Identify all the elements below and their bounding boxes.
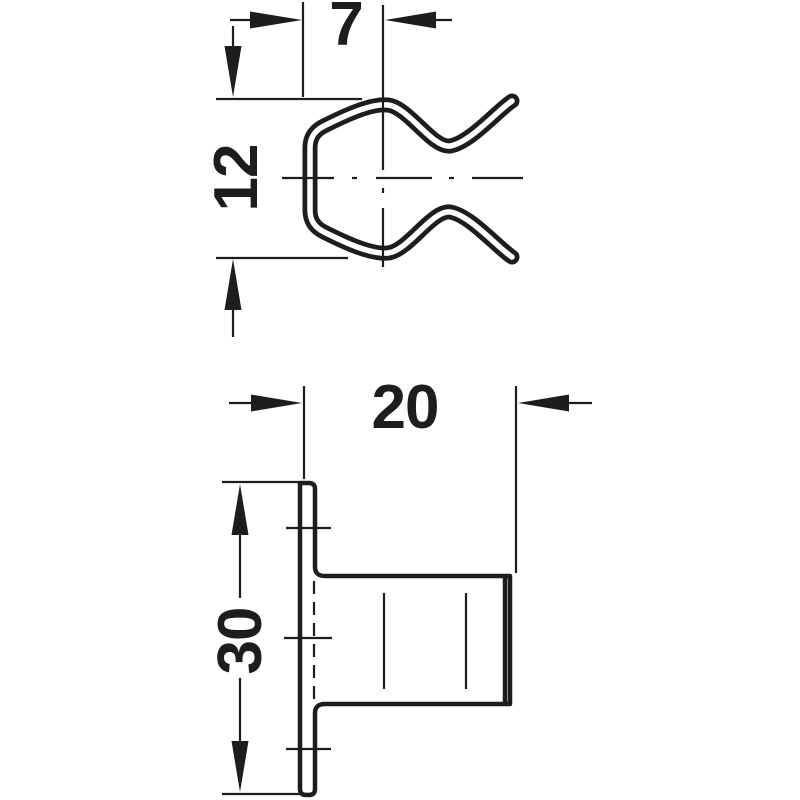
dim30-arrowhead-bottom (232, 741, 249, 792)
dim-7: 7 (230, 0, 452, 97)
dim30-arrowhead-top (232, 484, 249, 535)
dim7-arrowhead-left (250, 12, 302, 29)
technical-drawing: 7 12 (0, 0, 800, 800)
dim12-arrowhead-bottom (225, 259, 242, 310)
dim7-label: 7 (329, 0, 362, 59)
dim20-label: 20 (372, 373, 439, 442)
dim7-arrowhead-right (385, 12, 436, 29)
clip-view: 7 12 (202, 0, 523, 337)
dim12-label: 12 (202, 145, 271, 212)
dim-12: 12 (202, 26, 362, 337)
dim20-arrowhead-right (518, 395, 569, 412)
dim-20: 20 (229, 373, 592, 573)
socket-view: 20 30 (206, 373, 592, 795)
dim12-arrowhead-top (225, 46, 242, 97)
drawing-canvas: 7 12 (0, 0, 800, 800)
dim30-label: 30 (206, 608, 275, 675)
dim20-arrowhead-left (251, 395, 302, 412)
